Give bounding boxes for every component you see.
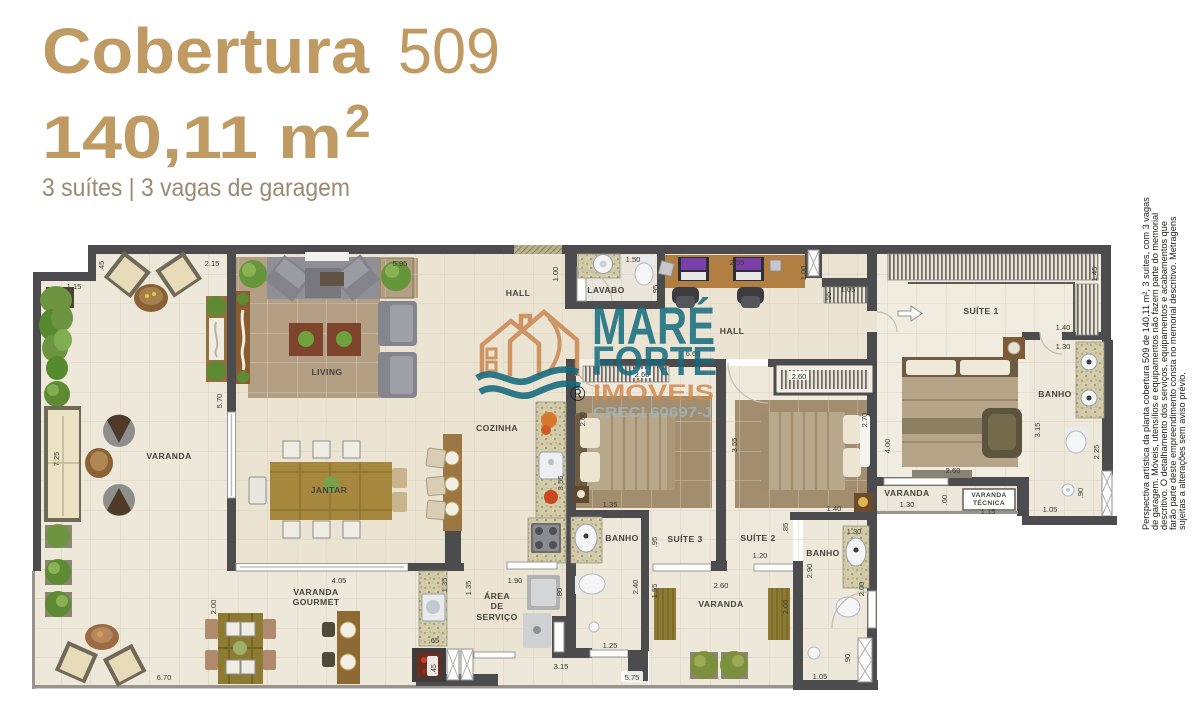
svg-text:1.35: 1.35: [464, 581, 473, 596]
svg-text:1.15: 1.15: [67, 282, 82, 291]
svg-text:2.40: 2.40: [631, 580, 640, 595]
svg-text:1.35: 1.35: [603, 500, 618, 509]
svg-text:3.55: 3.55: [556, 476, 565, 491]
svg-text:2.70: 2.70: [860, 413, 869, 428]
svg-text:3 suítes | 3 vagas de garagem: 3 suítes | 3 vagas de garagem: [42, 174, 350, 202]
svg-text:Cobertura: Cobertura: [42, 15, 369, 87]
svg-text:LAVABO: LAVABO: [587, 285, 624, 295]
svg-text:3.55: 3.55: [730, 438, 739, 453]
svg-text:VARANDA: VARANDA: [971, 492, 1006, 499]
svg-text:.80: .80: [555, 588, 564, 599]
svg-text:.45: .45: [97, 261, 106, 272]
svg-text:1.00: 1.00: [799, 266, 808, 281]
svg-text:1.45: 1.45: [1090, 267, 1099, 282]
svg-text:6.70: 6.70: [157, 673, 172, 682]
svg-text:2.60: 2.60: [946, 466, 961, 475]
svg-text:2: 2: [345, 95, 371, 147]
svg-text:1.90: 1.90: [508, 576, 523, 585]
svg-text:sujeitas a alterações sem avis: sujeitas a alterações sem aviso prévio.: [1177, 372, 1187, 530]
svg-text:1.05: 1.05: [841, 285, 856, 294]
svg-text:.45: .45: [431, 664, 438, 674]
svg-text:509: 509: [398, 15, 500, 87]
svg-text:4.05: 4.05: [332, 576, 347, 585]
svg-text:TÉCNICA: TÉCNICA: [973, 498, 1005, 507]
svg-text:.85: .85: [781, 523, 790, 534]
svg-text:1.40: 1.40: [1056, 323, 1071, 332]
svg-text:.55: .55: [824, 292, 833, 303]
svg-text:1.55: 1.55: [650, 584, 659, 599]
svg-text:HALL: HALL: [720, 326, 745, 336]
svg-text:1.30: 1.30: [1056, 342, 1071, 351]
svg-text:1.50: 1.50: [626, 255, 641, 264]
svg-text:5.75: 5.75: [625, 673, 640, 682]
svg-text:1.25: 1.25: [603, 641, 618, 650]
svg-text:SUÍTE 1: SUÍTE 1: [963, 306, 998, 316]
svg-text:2.00: 2.00: [209, 600, 218, 615]
svg-text:VARANDA: VARANDA: [884, 488, 929, 498]
svg-text:.95: .95: [651, 285, 660, 296]
svg-text:COZINHA: COZINHA: [476, 423, 518, 433]
svg-text:2.60: 2.60: [578, 412, 587, 427]
svg-text:SUÍTE 3: SUÍTE 3: [667, 534, 702, 544]
svg-text:1.05: 1.05: [813, 672, 828, 681]
svg-text:2.15: 2.15: [205, 259, 220, 268]
svg-text:1.20: 1.20: [753, 551, 768, 560]
svg-text:CRECI 60697-J: CRECI 60697-J: [593, 404, 712, 421]
svg-text:140,11 m: 140,11 m: [42, 104, 342, 171]
svg-text:IMÓVEIS: IMÓVEIS: [593, 380, 714, 405]
svg-text:BANHO: BANHO: [605, 533, 639, 543]
svg-text:.60: .60: [940, 495, 949, 506]
svg-text:1.30: 1.30: [900, 500, 915, 509]
svg-text:1.35: 1.35: [440, 578, 449, 593]
svg-text:.90: .90: [843, 654, 852, 665]
svg-text:1.40: 1.40: [827, 504, 842, 513]
svg-text:.90: .90: [1076, 488, 1085, 499]
svg-text:2.25: 2.25: [1092, 445, 1101, 460]
svg-text:1.00: 1.00: [551, 267, 560, 282]
svg-text:.65: .65: [429, 636, 440, 645]
svg-text:FORTE: FORTE: [592, 338, 717, 384]
svg-text:.95: .95: [650, 537, 659, 548]
svg-text:®: ®: [570, 383, 586, 406]
svg-text:DE: DE: [491, 601, 504, 611]
svg-text:ÁREA: ÁREA: [484, 591, 510, 601]
svg-text:5.70: 5.70: [215, 394, 224, 409]
svg-text:1.05: 1.05: [1043, 505, 1058, 514]
svg-text:2.00: 2.00: [781, 600, 790, 615]
svg-text:BANHO: BANHO: [1038, 389, 1072, 399]
svg-text:1.15: 1.15: [981, 507, 996, 516]
svg-text:HALL: HALL: [506, 288, 531, 298]
svg-text:VARANDA: VARANDA: [293, 587, 338, 597]
svg-text:2.60: 2.60: [714, 581, 729, 590]
svg-text:2.60: 2.60: [792, 372, 807, 381]
svg-text:VARANDA: VARANDA: [146, 451, 191, 461]
svg-text:7.25: 7.25: [52, 452, 61, 467]
svg-text:LIVING: LIVING: [311, 367, 342, 377]
svg-text:SERVIÇO: SERVIÇO: [476, 612, 517, 622]
svg-text:2.00: 2.00: [857, 582, 866, 597]
svg-text:GOURMET: GOURMET: [293, 597, 340, 607]
svg-text:5.95: 5.95: [393, 259, 408, 268]
svg-text:BANHO: BANHO: [806, 548, 840, 558]
svg-text:3.15: 3.15: [554, 662, 569, 671]
svg-text:SUÍTE 2: SUÍTE 2: [740, 533, 775, 543]
svg-text:3.15: 3.15: [1033, 423, 1042, 438]
svg-text:1.30: 1.30: [847, 527, 862, 536]
svg-text:JANTAR: JANTAR: [311, 485, 348, 495]
svg-text:2.90: 2.90: [805, 564, 814, 579]
svg-text:2.55: 2.55: [730, 258, 745, 267]
svg-text:4.00: 4.00: [883, 439, 892, 454]
svg-text:VARANDA: VARANDA: [698, 599, 743, 609]
